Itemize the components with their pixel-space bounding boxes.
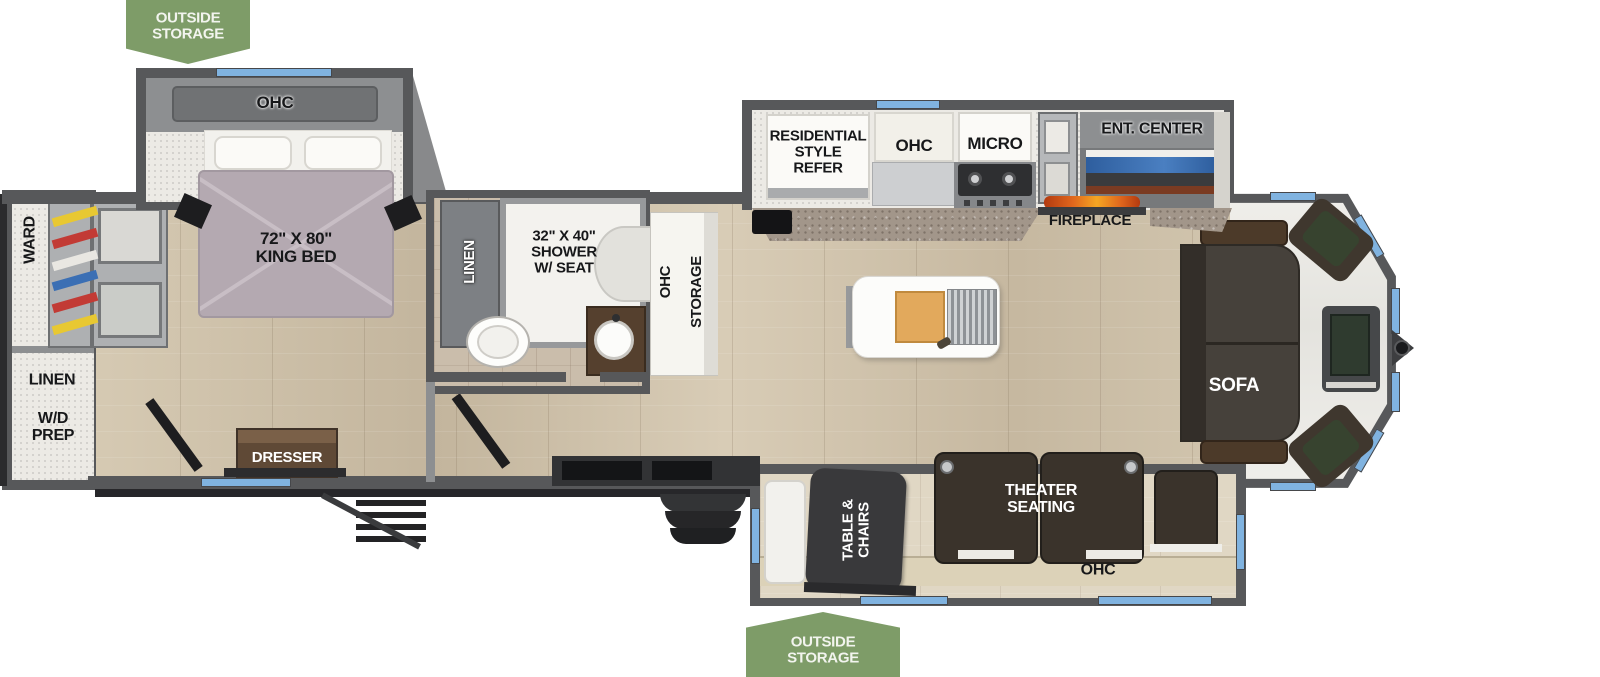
bed-pillow-right — [304, 136, 382, 170]
entry-steps — [660, 494, 746, 548]
bathroom-faucet — [612, 314, 620, 322]
pantry-shelf-2 — [1044, 162, 1070, 196]
hitch-pin — [1394, 340, 1410, 356]
bathroom-bottom-wall-left — [426, 372, 566, 382]
dinette-ohc-label: OHC — [1081, 563, 1116, 580]
entry-step-3 — [670, 528, 736, 544]
king-bed-label: 72" X 80" KING BED — [256, 230, 337, 266]
range-stove — [954, 162, 1036, 208]
rear-bumper — [0, 194, 7, 486]
bed-pillow-left — [214, 136, 292, 170]
dresser-label: DRESSER — [252, 450, 322, 466]
bedroom-ohc-label: OHC — [257, 94, 294, 112]
toilet — [466, 316, 530, 368]
table-chairs-label: TABLE & CHAIRS — [840, 499, 872, 561]
nose-tv-screen — [1330, 314, 1370, 376]
sofa-cushion-seam — [1206, 342, 1298, 345]
cap-window-right-upper — [1391, 288, 1400, 334]
kitchen-window — [876, 100, 940, 109]
theater-cupholder-left — [940, 460, 954, 474]
wardrobe-shelf-lower — [98, 282, 162, 338]
bathroom-bottom-wall-right — [600, 372, 650, 382]
hallway-ohc-label: OHC — [658, 266, 674, 298]
wardrobe-shelf-upper — [98, 208, 162, 264]
top-wall-rear-segment — [2, 192, 144, 204]
theater-footrest-right — [1086, 550, 1142, 559]
theater-footrest-left — [958, 550, 1014, 559]
hallway-cabinet-side — [704, 213, 718, 375]
cutting-board — [895, 291, 945, 343]
burner-right — [1002, 172, 1016, 186]
ent-center-side-panel — [1214, 112, 1230, 208]
dresser-top — [238, 430, 336, 443]
ent-center-shelf-wood — [1086, 186, 1216, 194]
dinette-bench — [764, 480, 806, 584]
outside-storage-bottom-label: OUTSIDE STORAGE — [787, 634, 859, 666]
ward-label: WARD — [23, 216, 40, 264]
ent-center-shelf-dark — [1086, 173, 1216, 186]
dinette-window-bottom-left — [860, 596, 948, 605]
shower-label: 32" X 40" SHOWER W/ SEAT — [531, 228, 597, 275]
pantry-cabinet — [1038, 112, 1078, 204]
entry-counter-inset-right — [652, 461, 712, 480]
hallway-storage-label: STORAGE — [689, 256, 705, 328]
pantry-shelf-1 — [1044, 120, 1070, 154]
refrigerator-base — [768, 188, 868, 198]
sofa-back — [1182, 246, 1206, 440]
stove-knobs — [964, 200, 1026, 206]
nose-tv-shelf — [1326, 382, 1376, 388]
outside-storage-top-label: OUTSIDE STORAGE — [152, 10, 224, 42]
shower-seat — [594, 226, 654, 302]
nose-tv-stand — [1322, 306, 1380, 392]
fold-step-1 — [356, 500, 426, 506]
slide-end-shelf — [1150, 544, 1222, 552]
kitchen-ohc-label: OHC — [896, 137, 933, 155]
kitchen-counter-under-ohc — [872, 162, 956, 206]
sofa — [1180, 244, 1300, 442]
bedroom-bath-partition — [426, 382, 435, 482]
ent-center-shelf — [1086, 150, 1216, 157]
entry-step-2 — [665, 511, 741, 529]
dinette-window-right — [1236, 514, 1245, 570]
toilet-seat — [477, 325, 519, 359]
theater-cupholder-right — [1124, 460, 1138, 474]
cap-window-bottom — [1270, 482, 1316, 491]
cap-window-right-lower — [1391, 372, 1400, 412]
refer-label: RESIDENTIAL STYLE REFER — [770, 128, 867, 175]
dinette-window-left — [751, 508, 760, 564]
entry-step-1 — [660, 494, 746, 512]
dishwasher-black — [752, 210, 792, 234]
micro-label: MICRO — [967, 135, 1022, 153]
wd-prep-label: W/D PREP — [32, 411, 74, 445]
ent-center-tv — [1086, 157, 1216, 173]
kitchen-island — [852, 276, 1000, 358]
bathroom-linen-label: LINEN — [462, 240, 478, 284]
sofa-armrest-bottom — [1200, 440, 1288, 464]
bedroom-slide-window — [216, 68, 332, 77]
bedroom-slide-corner — [413, 76, 449, 202]
fold-out-steps — [330, 498, 440, 550]
dresser-base-shadow — [224, 468, 346, 477]
dinette-window-bottom-right — [1098, 596, 1212, 605]
entry-counter-inset-left — [562, 461, 642, 480]
ent-center-label: ENT. CENTER — [1101, 122, 1203, 139]
bathroom-sink — [594, 320, 634, 360]
theater-seating-label: THEATER SEATING — [1005, 483, 1077, 517]
entry-counter — [552, 456, 760, 486]
burner-left — [968, 172, 982, 186]
cap-window-top — [1270, 192, 1316, 201]
bedroom-window — [201, 478, 291, 487]
sink-cover — [947, 289, 997, 345]
rear-linen-label: LINEN — [29, 373, 76, 390]
fireplace-label: FIREPLACE — [1049, 213, 1131, 229]
rv-floorplan: WARD LINEN W/D PREP OHC 72" X 80" KING B… — [0, 0, 1600, 677]
slide-end-chair — [1154, 470, 1218, 550]
sofa-label: SOFA — [1209, 376, 1260, 396]
